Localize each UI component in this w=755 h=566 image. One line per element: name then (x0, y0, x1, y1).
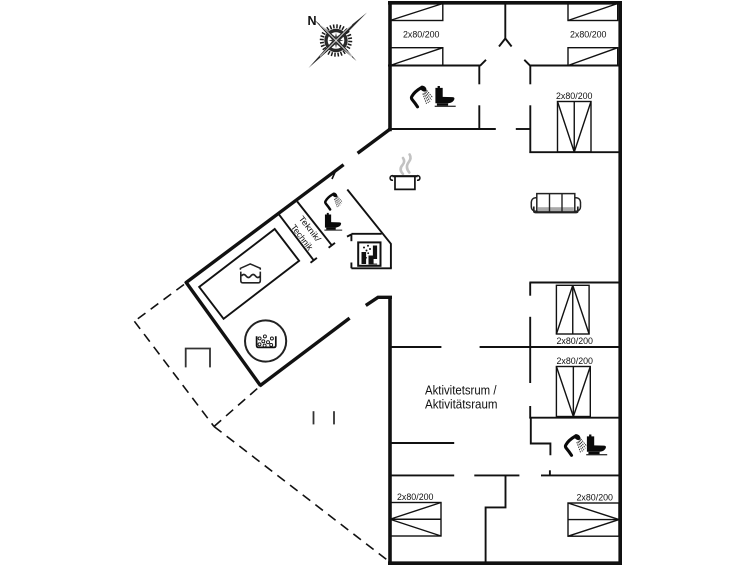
svg-text:2x80/200: 2x80/200 (557, 356, 594, 366)
svg-text:2x80/200: 2x80/200 (403, 29, 440, 39)
svg-text:2x80/200: 2x80/200 (577, 493, 614, 503)
svg-text:N: N (308, 14, 317, 28)
svg-text:2x80/200: 2x80/200 (397, 492, 434, 502)
svg-text:Aktivitätsraum: Aktivitätsraum (425, 398, 498, 412)
svg-text:2x80/200: 2x80/200 (556, 91, 593, 101)
svg-text:2x80/200: 2x80/200 (570, 29, 607, 39)
svg-text:2x80/200: 2x80/200 (557, 336, 594, 346)
svg-text:Aktivitetsrum /: Aktivitetsrum / (425, 384, 497, 398)
